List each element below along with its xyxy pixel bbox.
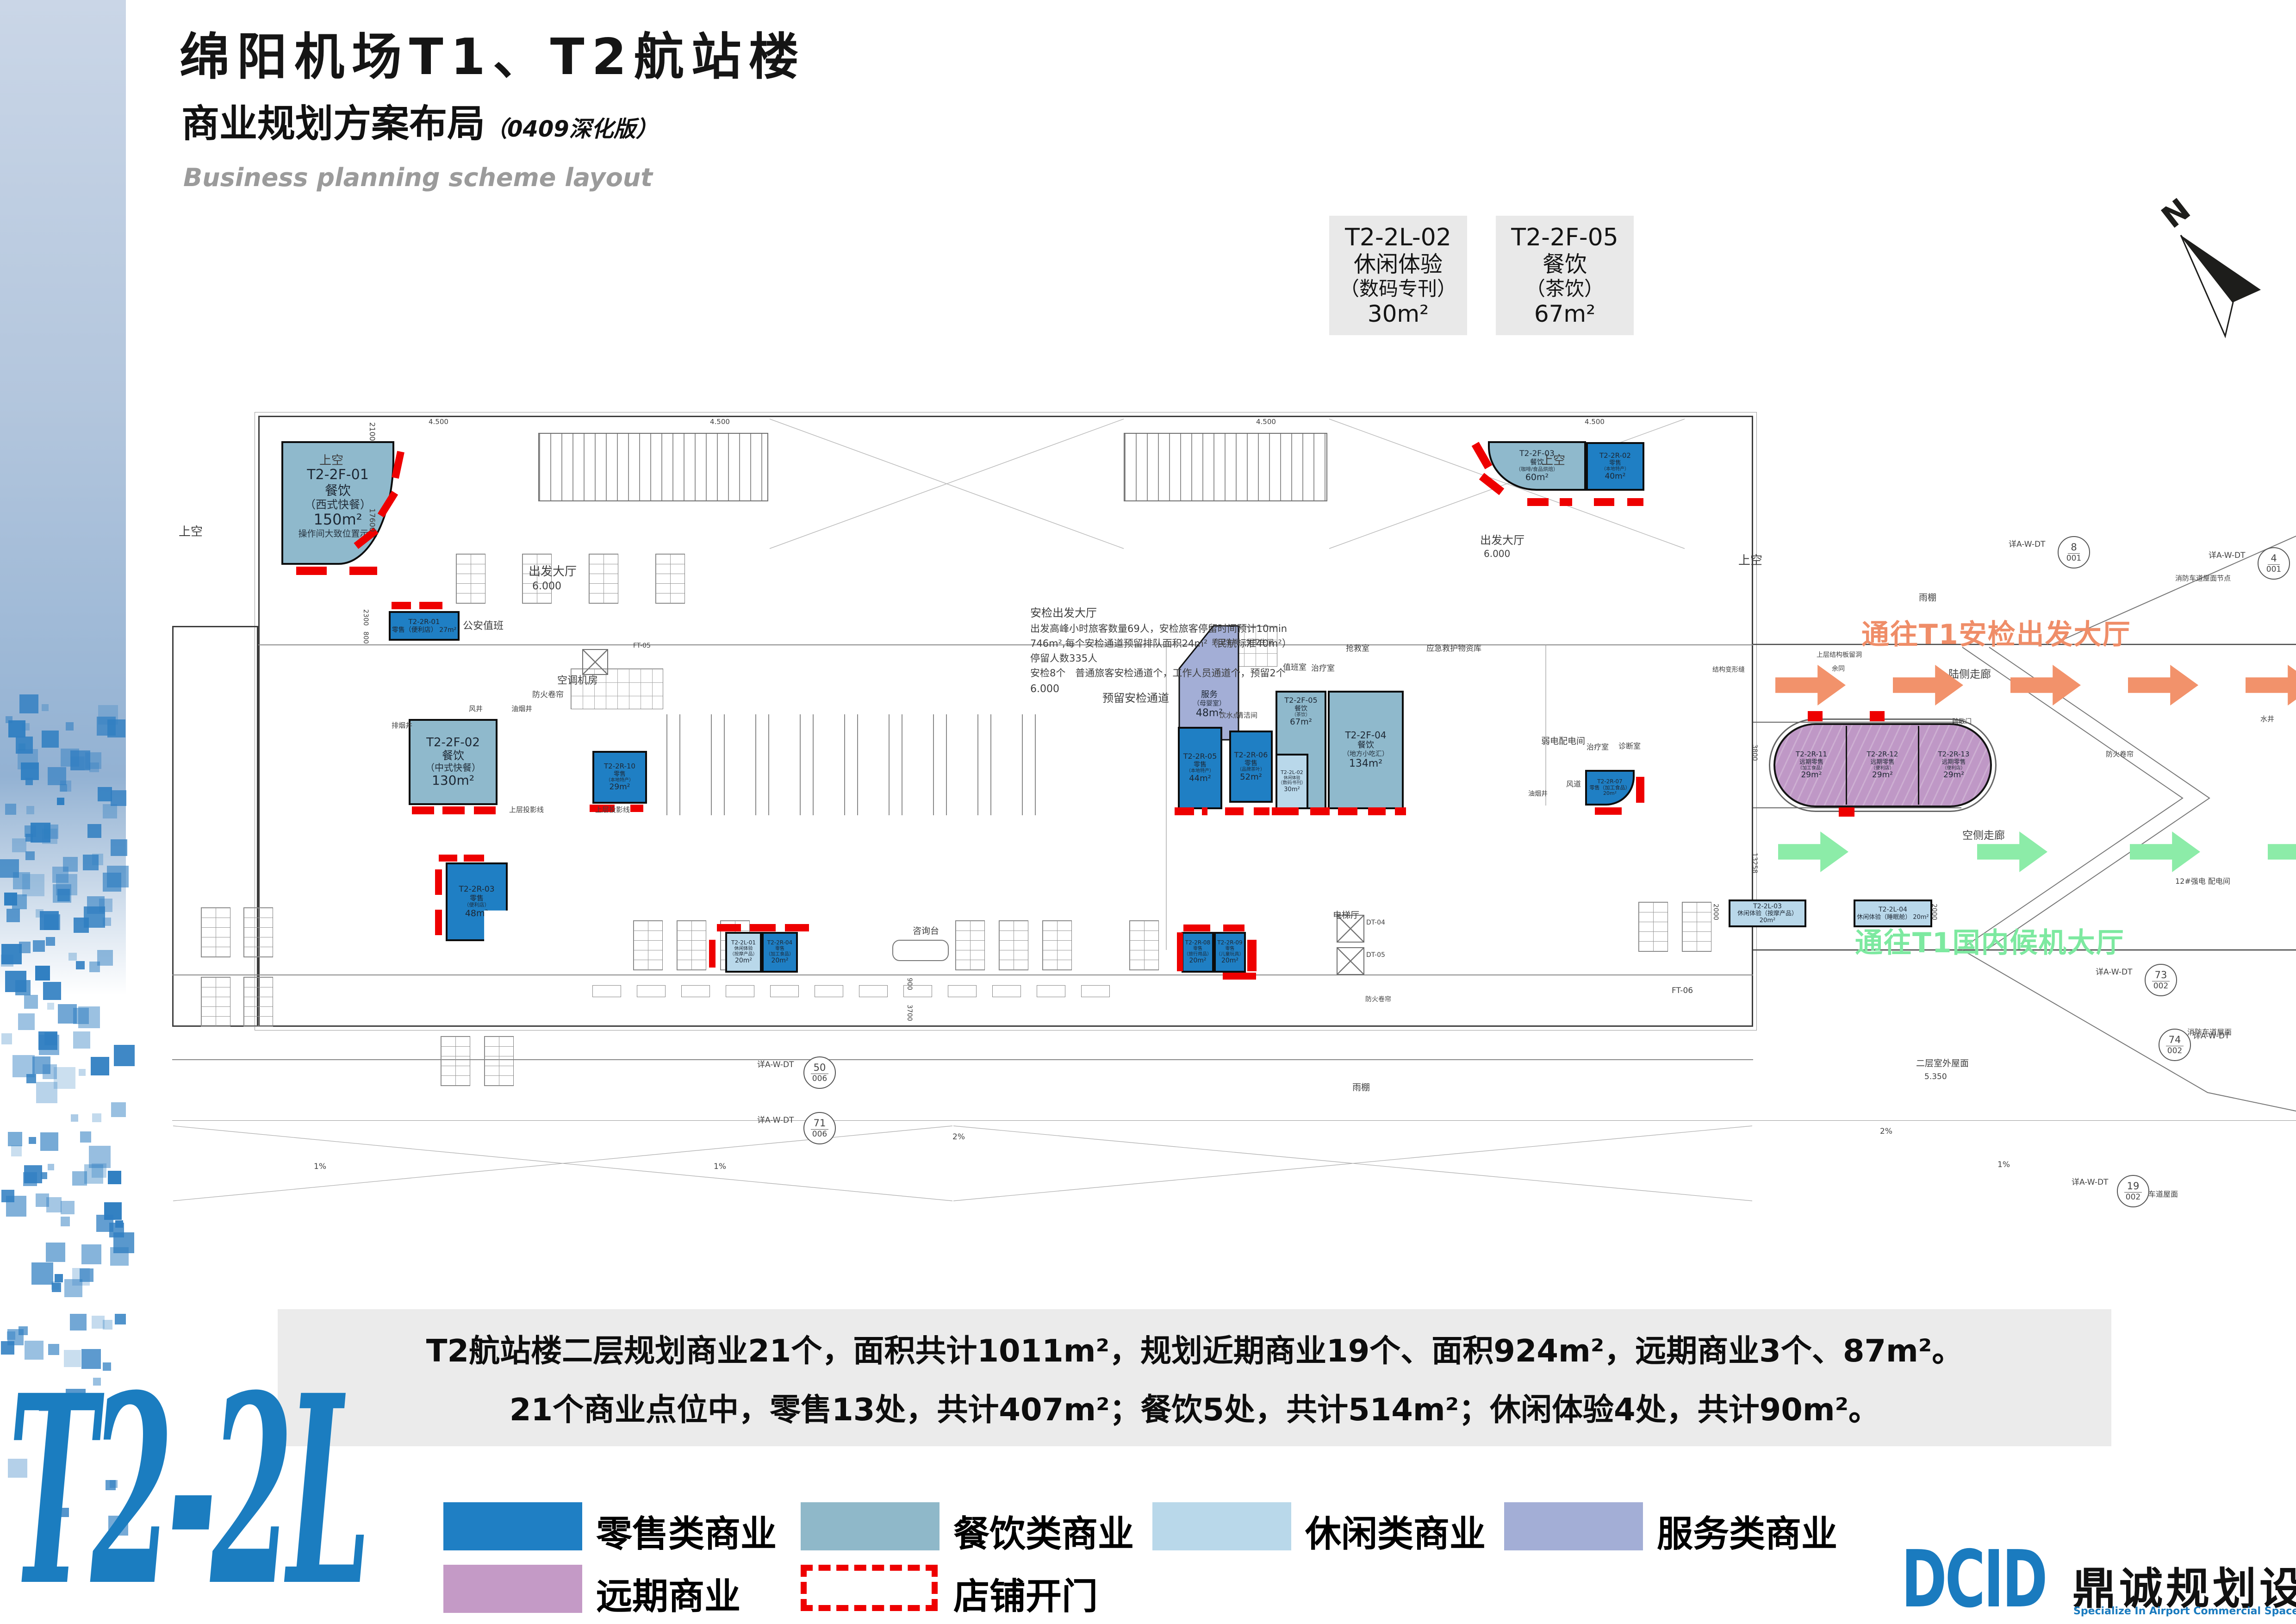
mosaic-square — [46, 937, 55, 946]
checkin-counter — [592, 985, 621, 997]
seating-block — [1129, 920, 1159, 970]
shop-door-mark — [1183, 924, 1210, 931]
mosaic-square — [57, 798, 64, 805]
shop-door-mark — [1527, 498, 1549, 506]
mosaic-square — [79, 1069, 86, 1076]
zone-z-code: T2-2F-04 — [1345, 730, 1386, 741]
zone-T2-2R-08: T2-2R-08零售（旅行用品）20m² — [1182, 932, 1214, 973]
seating-block — [589, 554, 618, 604]
zone-z-cat: 远期零售 — [1799, 759, 1823, 766]
mosaic-square — [24, 1165, 42, 1183]
legend-swatch — [801, 1502, 940, 1550]
shop-door-mark — [412, 806, 434, 814]
shop-door-mark — [1177, 932, 1183, 971]
plan-annotation: 3700 — [906, 1005, 913, 1021]
mosaic-square — [111, 1102, 126, 1118]
plan-annotation: 电梯厅 — [1333, 911, 1359, 920]
plan-annotation: 公安值班 — [463, 621, 504, 631]
detail-marker-text: 006 — [812, 1074, 827, 1083]
zone-T2-2R-02: T2-2R-02零售（本地特产）40m² — [1586, 442, 1644, 491]
plan-annotation: 应急救护物资库 — [1426, 645, 1481, 653]
mosaic-square — [6, 716, 12, 723]
plan-annotation: 1% — [314, 1163, 326, 1171]
shop-door-mark — [1627, 498, 1643, 506]
plan-annotation: 防火卷帘 — [1365, 996, 1391, 1003]
mosaic-square — [40, 911, 59, 930]
zone-T2-2R-12: T2-2R-12远期零售（便利店）29m² — [1846, 726, 1918, 805]
mosaic-square — [7, 1331, 15, 1340]
zone-z-cat: 零售 — [1244, 760, 1257, 767]
zone-T2-2F-02: T2-2F-02餐饮（中式快餐）130m² — [409, 719, 498, 805]
shop-door-mark — [1870, 711, 1885, 721]
zone-z-det: （便利店） — [1871, 766, 1894, 771]
zone-z-area: 29m² — [1943, 771, 1964, 780]
mosaic-square — [114, 1045, 135, 1066]
mosaic-square — [51, 1281, 60, 1290]
building-outline-left-wing — [172, 626, 258, 1027]
shop-door-mark — [1223, 924, 1244, 931]
shop-door-mark — [785, 924, 809, 931]
plan-annotation: 详A-W-DT — [2072, 1179, 2108, 1187]
mosaic-square — [46, 1243, 65, 1262]
plan-annotation: 5.350 — [1924, 1073, 1947, 1081]
mosaic-square — [25, 834, 33, 841]
mosaic-square — [19, 694, 38, 713]
mosaic-square — [92, 1113, 101, 1122]
seating-block — [677, 920, 706, 970]
zone-z-cat: 零售 — [470, 894, 484, 902]
mosaic-square — [18, 1013, 35, 1031]
zone-T2-2F-04: T2-2F-04餐饮（地方小吃汇）134m² — [1328, 691, 1404, 809]
plan-annotation: 2300 — [362, 609, 369, 626]
zone-z-cat: 远期零售 — [1870, 759, 1894, 766]
seating-block — [243, 907, 273, 957]
zone-z-code: T2-2R-06 — [1234, 751, 1268, 760]
plan-annotation: 结构变形缝 — [1712, 667, 1745, 673]
mosaic-square — [29, 1137, 36, 1144]
plan-annotation: 油烟井 — [1528, 791, 1548, 797]
zone-z-area: 30m² — [1284, 786, 1300, 793]
mosaic-square — [87, 896, 105, 914]
checkin-counter — [859, 985, 888, 997]
logo-acronym: DCID — [1901, 1544, 2046, 1615]
flow-arrow-green-icon — [2268, 831, 2296, 872]
zone-z-det: （加工食品） — [766, 952, 794, 957]
callout-text: 67m² — [1534, 301, 1595, 327]
plan-annotation: 抢救室 — [1346, 645, 1369, 653]
mosaic-square — [31, 1262, 54, 1285]
zone-z-area: 20m² — [1189, 957, 1206, 964]
plan-annotation: 详A-W-DT — [757, 1117, 794, 1124]
legend-swatch — [1152, 1502, 1291, 1550]
mosaic-square — [26, 806, 35, 814]
plan-annotation: 余同 — [1832, 666, 1845, 672]
mosaic-square — [1, 955, 13, 967]
mosaic-square — [42, 704, 49, 711]
plan-annotation: 详A-W-DT — [757, 1061, 794, 1069]
zone-z-area: 67m² — [1290, 718, 1312, 727]
mosaic-square — [76, 961, 84, 969]
mosaic-square — [89, 962, 100, 972]
zone-z-det: （本地特产） — [1601, 467, 1629, 472]
seating-block — [633, 920, 663, 970]
plan-annotation: 4.500 — [1256, 418, 1276, 425]
plan-annotation: 空调机房 — [557, 676, 598, 686]
seating-block — [999, 920, 1028, 970]
shop-door-mark — [442, 806, 465, 814]
plan-annotation: 空侧走廊 — [1962, 831, 2005, 841]
zone-z-det: （西式快餐） — [305, 499, 371, 512]
checkin-counter — [992, 985, 1021, 997]
apron-line — [172, 1059, 1753, 1060]
detail-marker-text: 001 — [2066, 554, 2081, 563]
mosaic-square — [81, 1244, 101, 1264]
plan-annotation: 诊断室 — [1618, 743, 1641, 750]
zone-z-area: 29m² — [609, 783, 630, 792]
checkin-counter — [1081, 985, 1110, 997]
plan-annotation: 雨棚 — [1352, 1083, 1370, 1092]
seating-block — [484, 1036, 514, 1086]
seating-block — [243, 977, 273, 1027]
queue-lane — [1022, 714, 1036, 815]
checkin-counter — [948, 985, 977, 997]
zone-T2-2R-09: T2-2R-09零售（儿童玩具）20m² — [1214, 932, 1246, 973]
mosaic-square — [19, 1326, 27, 1335]
plan-annotation: 6.000 — [1030, 684, 1059, 694]
shop-door-mark — [1272, 807, 1299, 815]
wall-line — [172, 974, 1753, 975]
zone-z-cat: 零售 — [1193, 946, 1202, 952]
plan-annotation: 出发大厅 — [529, 566, 577, 578]
plan-annotation: 详A-W-DT — [2096, 968, 2132, 976]
zone-z-code: T2-2R-04 — [767, 940, 792, 946]
checkin-counter — [815, 985, 843, 997]
zone-z-code: T2-2R-02 — [1599, 452, 1631, 460]
legend-swatch — [443, 1502, 582, 1550]
elevator-shaft — [582, 649, 608, 675]
zone-z-det: （数码书刊） — [1278, 781, 1306, 786]
shop-door-mark — [1310, 807, 1330, 815]
zone-z-code: T2-2R-13 — [1938, 750, 1970, 758]
zone-T2-2R-05: T2-2R-05零售（本地特产）44m² — [1178, 727, 1222, 809]
north-label: N — [2157, 192, 2197, 236]
plan-annotation: 上空 — [319, 455, 343, 467]
callout-text: （茶饮） — [1526, 278, 1604, 300]
shop-door-mark — [1395, 807, 1406, 815]
plan-annotation: 3800 — [1751, 744, 1758, 761]
seating-block — [1682, 902, 1711, 952]
mosaic-square — [6, 909, 20, 922]
mosaic-square — [33, 940, 45, 952]
plan-annotation: 水井 — [2260, 716, 2274, 723]
mosaic-square — [108, 1171, 121, 1184]
shop-door-mark — [1338, 807, 1357, 815]
zone-z-area: 29m² — [1872, 771, 1893, 780]
mosaic-square — [85, 752, 102, 769]
plan-annotation: DT-05 — [1366, 952, 1385, 958]
plan-annotation: 17600 — [368, 508, 376, 532]
zone-z-cat: 餐饮 — [1294, 705, 1307, 712]
plan-annotation: 4.500 — [1585, 418, 1605, 425]
mosaic-square — [91, 1057, 109, 1075]
detail-marker: 73002 — [2145, 964, 2177, 996]
shop-door-mark — [392, 602, 411, 609]
mosaic-square — [103, 918, 111, 926]
legend-swatch-dashed — [801, 1565, 938, 1611]
plan-annotation: 雨棚 — [1919, 593, 1936, 602]
zone-T2-2L-01: T2-2L-01休闲体验（按摩产品）20m² — [725, 932, 762, 973]
zone-z-code: T2-2R-05 — [1183, 752, 1217, 761]
mosaic-square — [80, 1131, 91, 1143]
seating-block — [1638, 902, 1668, 952]
plan-annotation: 咨询台 — [913, 927, 939, 936]
checkin-counter — [637, 985, 666, 997]
subtitle-note: （0409深化版） — [485, 116, 658, 142]
mosaic-square — [71, 1114, 78, 1122]
escalator-block — [538, 433, 768, 501]
zone-z-cat: 服务 — [1201, 690, 1218, 700]
legend-swatch — [1504, 1502, 1643, 1550]
plan-annotation: 上空 — [1738, 555, 1762, 567]
zone-T2-2R-11: T2-2R-11远期零售（加工食品）29m² — [1777, 726, 1846, 805]
plan-annotation: 上空 — [179, 526, 203, 538]
zone-z-code: T2-2F-05 — [1284, 696, 1317, 705]
plan-annotation: 800 — [362, 631, 369, 644]
callout-text: （数码专刊） — [1340, 278, 1456, 300]
zone-z-area: 52m² — [1240, 773, 1262, 782]
shop-door-mark — [1223, 973, 1256, 980]
zone-z-code: T2-2L-04 — [1879, 906, 1907, 913]
callout-text: T2-2F-05 — [1511, 224, 1618, 251]
plan-annotation: 2% — [952, 1133, 965, 1141]
zone-z-det: （按摩产品） — [730, 952, 758, 957]
zone-z-code: T2-2R-12 — [1867, 750, 1898, 758]
zone-z-area: 150m² — [313, 511, 362, 528]
zone-z-det: （便利店） — [1942, 766, 1966, 771]
callout-text: T2-2L-02 — [1345, 224, 1451, 251]
shop-door-mark — [474, 806, 496, 814]
plan-annotation: 4.500 — [429, 418, 448, 425]
plan-annotation: 停留人数335人 — [1030, 654, 1097, 663]
shop-door-mark — [717, 924, 741, 931]
mosaic-square — [98, 787, 112, 801]
mosaic-square — [87, 824, 101, 838]
plan-annotation: 预留安检通道 — [1102, 693, 1169, 704]
shop-door-mark — [435, 910, 442, 935]
zone-z-area: 130m² — [432, 773, 474, 788]
plan-annotation: 2000 — [1712, 904, 1719, 920]
summary-line-2: 21个商业点位中，零售13处，共计407m²；餐饮5处，共计514m²；休闲体验… — [510, 1385, 1879, 1430]
summary-box: T2航站楼二层规划商业21个，面积共计1011m²，规划近期商业19个、面积92… — [278, 1309, 2111, 1446]
legend-label: 店铺开门 — [953, 1568, 1098, 1619]
mosaic-square — [24, 995, 38, 1009]
plan-annotation: 风井 — [469, 706, 483, 712]
plan-annotation: 男卫生间 — [1212, 639, 1239, 646]
plan-annotation: 安检出发大厅 — [1030, 607, 1097, 618]
shop-door-mark — [709, 940, 716, 968]
zone-T2-2R-01: T2-2R-01零售（便利店） 27m² — [389, 611, 460, 641]
zone-z-det: （旅行用品） — [1184, 952, 1212, 957]
zone-z-det: （地方小吃汇） — [1343, 750, 1388, 758]
subtitle-text: 商业规划方案布局 — [181, 102, 485, 146]
detail-marker-text: 19 — [2124, 1181, 2142, 1193]
plan-annotation: 900 — [906, 978, 913, 990]
zone-T2-2L-03: T2-2L-03休闲体验（按摩产品） 20m² — [1729, 899, 1806, 927]
zone-z-det: （本地特产） — [1186, 768, 1214, 774]
mosaic-square — [42, 829, 58, 844]
logo-tagline: Specialize In Airport Commercial Space P… — [2073, 1605, 2296, 1617]
plan-annotation: 治疗室 — [1311, 665, 1335, 673]
zone-z-area: 29m² — [1801, 771, 1822, 780]
mosaic-square — [26, 1074, 36, 1083]
plan-annotation: 1% — [714, 1163, 726, 1171]
page-title: 绵阳机场T1、T2航站楼 — [180, 17, 806, 89]
plan-annotation: 陆侧走廊 — [1948, 669, 1991, 680]
mosaic-square — [0, 859, 19, 878]
plan-annotation: 12#强电 配电间 — [2175, 878, 2230, 885]
shop-door-mark — [750, 924, 776, 931]
zone-z-code: T2-2F-02 — [426, 736, 480, 750]
zone-T2-2R-06: T2-2R-06零售（品牌茶叶）52m² — [1229, 731, 1273, 803]
seating-block — [201, 977, 230, 1027]
shop-door-mark — [349, 567, 377, 575]
zone-z-code: T2-2R-07 — [1597, 779, 1622, 785]
plan-annotation: DT-04 — [1366, 919, 1385, 926]
zone-T2-2R-13: T2-2R-13远期零售（便利店）29m² — [1918, 726, 1988, 805]
detail-marker-text: 73 — [2152, 969, 2170, 981]
plan-annotation: 值班室 — [1283, 664, 1307, 672]
shop-door-mark — [630, 805, 643, 812]
zone-z-code: T2-2R-10 — [604, 762, 635, 770]
queue-lane — [711, 714, 725, 815]
shop-door-mark — [1594, 498, 1614, 506]
plan-annotation: 防火卷帘 — [2106, 751, 2134, 758]
seating-block — [1042, 920, 1072, 970]
summary-line-1: T2航站楼二层规划商业21个，面积共计1011m²，规划近期商业19个、面积92… — [426, 1326, 1963, 1371]
zone-z-cat: 休闲体验（睡眠舱） 20m² — [1857, 914, 1929, 921]
queue-lane — [800, 714, 814, 815]
mosaic-square — [12, 838, 26, 853]
zone-z-cat: 远期零售 — [1941, 759, 1966, 766]
zone-z-cat: 零售 — [1226, 946, 1235, 952]
callout-text: 30m² — [1368, 301, 1429, 327]
plan-annotation: 风道 — [1566, 781, 1581, 788]
mosaic-square — [58, 1004, 77, 1024]
subtitle-english: Business planning scheme layout — [183, 163, 653, 192]
zone-z-code: T2-2L-02 — [1281, 770, 1303, 776]
plan-annotation: 2100 — [368, 422, 376, 441]
zone-z-area: 134m² — [1349, 758, 1382, 770]
mosaic-square — [36, 1193, 49, 1206]
mosaic-square — [103, 1320, 112, 1330]
detail-marker: 71006 — [803, 1112, 836, 1144]
mosaic-square — [11, 1145, 22, 1156]
seating-block — [522, 554, 552, 604]
flow-arrow-orange-icon — [2246, 665, 2296, 706]
legend-label: 服务类商业 — [1657, 1505, 1837, 1557]
plan-annotation: 出发大厅 — [1480, 535, 1524, 546]
seating-block — [441, 1036, 470, 1086]
shop-door-mark — [464, 855, 484, 862]
zone-z-area: 20m² — [771, 957, 788, 964]
zone-z-det: （儿童玩具） — [1216, 952, 1244, 957]
detail-marker: 8001 — [2058, 536, 2090, 568]
mosaic-square — [70, 1314, 87, 1330]
mosaic-square — [83, 855, 99, 870]
route-label: 通往T1安检出发大厅 — [1861, 612, 2131, 652]
wall-line — [258, 644, 1753, 645]
seating-block — [456, 554, 485, 604]
plan-annotation: 二层室外屋面 — [1916, 1059, 1969, 1068]
flow-arrow-green-icon — [2130, 831, 2200, 872]
mosaic-square — [61, 1201, 74, 1214]
zone-z-cat: 零售（便利店） 27m² — [392, 626, 457, 634]
mosaic-square — [48, 1164, 54, 1170]
mosaic-square — [25, 851, 34, 860]
plan-annotation: 出发高峰小时旅客数量69人，安检旅客停留时间预计10min — [1030, 624, 1287, 634]
detail-marker-text: 50 — [811, 1062, 829, 1074]
plan-annotation: 女卫生间 — [1246, 639, 1274, 646]
mosaic-square — [5, 804, 17, 815]
mosaic-square — [72, 1268, 90, 1286]
zone-z-det: （品牌茶叶） — [1237, 767, 1265, 773]
mosaic-square — [73, 1031, 90, 1049]
queue-lane — [977, 714, 991, 815]
mosaic-square — [43, 982, 61, 1000]
mosaic-square — [42, 731, 59, 748]
callout-text: 餐饮 — [1543, 252, 1587, 277]
zone-z-area: 20m² — [1221, 957, 1238, 964]
zone-z-code: T2-2R-01 — [409, 618, 440, 626]
plan-annotation: 排烟井 — [392, 722, 412, 729]
plan-annotation: 1% — [1997, 1161, 2010, 1169]
mosaic-square — [12, 894, 27, 909]
mosaic-square — [35, 966, 50, 981]
detail-marker-text: 002 — [2153, 981, 2168, 991]
flow-arrow-green-icon — [1778, 831, 1848, 872]
shop-door-mark — [1636, 777, 1644, 803]
zone-z-area: 40m² — [1605, 472, 1625, 481]
queue-lane — [755, 714, 769, 815]
shop-door-mark — [1254, 807, 1269, 815]
legend-label: 零售类商业 — [596, 1505, 777, 1557]
zone-z-det: （母婴室） — [1193, 700, 1226, 707]
zone-z-cat: 休闲体验 — [1283, 776, 1300, 781]
plan-annotation: 防火卷帘 — [532, 691, 564, 699]
plan-annotation: 安检8个 普通旅客安检通道个，工作人员通道个，预留2个 — [1030, 668, 1286, 678]
zone-z-cat: 零售 — [775, 946, 784, 952]
checkin-counter — [681, 985, 710, 997]
shop-door-mark — [296, 567, 327, 575]
zone-z-code: T2-2R-03 — [459, 885, 494, 894]
zone-z-code: T2-2R-11 — [1796, 750, 1827, 758]
plan-annotation: 弱电配电间 — [1541, 737, 1585, 746]
plan-annotation: 4.500 — [710, 418, 730, 425]
plan-annotation: 详A-W-DT — [2209, 552, 2245, 560]
escalator-block — [1124, 433, 1327, 501]
plan-annotation: 油烟井 — [511, 706, 532, 712]
queue-lane — [666, 714, 680, 815]
seating-block — [955, 920, 985, 970]
shop-door-mark — [1560, 498, 1572, 506]
mosaic-square — [68, 953, 76, 961]
north-arrow-icon: N — [2157, 189, 2296, 342]
mosaic-square — [32, 1056, 50, 1074]
zone-z-cat: 休闲体验（按摩产品） 20m² — [1730, 910, 1804, 924]
queue-lane — [933, 714, 947, 815]
mosaic-square — [111, 790, 126, 806]
shop-door-mark — [435, 869, 442, 895]
